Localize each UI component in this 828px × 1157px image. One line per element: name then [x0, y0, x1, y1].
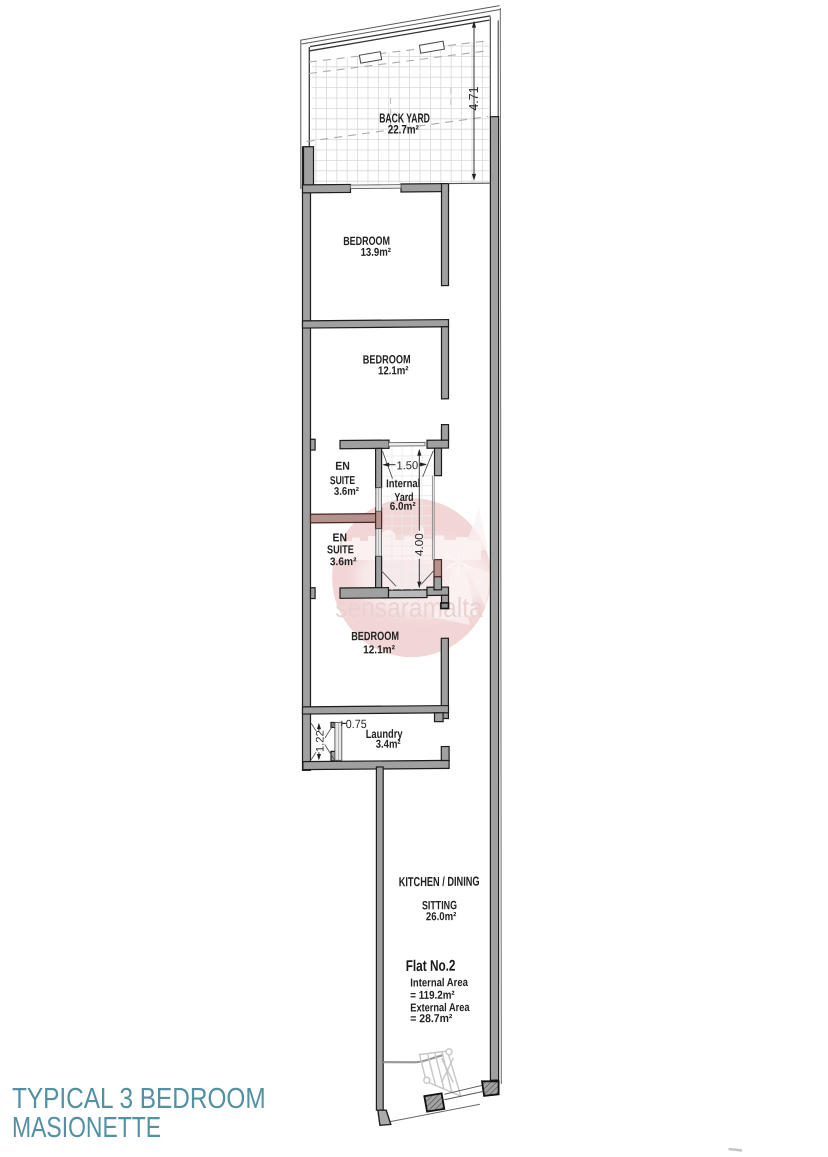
svg-text:KITCHEN / DINING: KITCHEN / DINING: [399, 874, 480, 890]
svg-text:3.6m²: 3.6m²: [330, 556, 357, 568]
svg-text:22.7m²: 22.7m²: [388, 122, 419, 136]
svg-text:EN: EN: [335, 461, 350, 473]
svg-text:26.0m²: 26.0m²: [426, 911, 457, 923]
svg-text:Internal: Internal: [386, 478, 420, 490]
svg-text:4.00: 4.00: [414, 533, 426, 556]
svg-text:TYPICAL 3 BEDROOM: TYPICAL 3 BEDROOM: [12, 1083, 266, 1115]
svg-text:1.50: 1.50: [397, 460, 419, 472]
svg-text:6.0m²: 6.0m²: [390, 501, 416, 513]
svg-text:= 119.2m²: = 119.2m²: [410, 990, 455, 1002]
svg-text:1.22: 1.22: [315, 730, 327, 752]
svg-text:12.1m²: 12.1m²: [363, 644, 395, 656]
svg-text:= 28.7m²: = 28.7m²: [410, 1013, 452, 1025]
svg-text:BEDROOM: BEDROOM: [351, 629, 399, 643]
svg-text:4.71: 4.71: [467, 86, 481, 110]
svg-text:EN: EN: [333, 532, 348, 544]
svg-text:13.9m²: 13.9m²: [361, 247, 392, 259]
svg-text:MASIONETTE: MASIONETTE: [12, 1112, 161, 1144]
svg-text:3.4m²: 3.4m²: [376, 739, 401, 751]
svg-text:SUITE: SUITE: [327, 544, 354, 556]
svg-text:12.1m²: 12.1m²: [378, 365, 409, 377]
svg-text:3.6m²: 3.6m²: [334, 486, 359, 498]
svg-text:0.75: 0.75: [346, 717, 367, 731]
svg-text:Internal Area: Internal Area: [410, 977, 468, 990]
svg-text:Flat No.2: Flat No.2: [406, 958, 456, 975]
